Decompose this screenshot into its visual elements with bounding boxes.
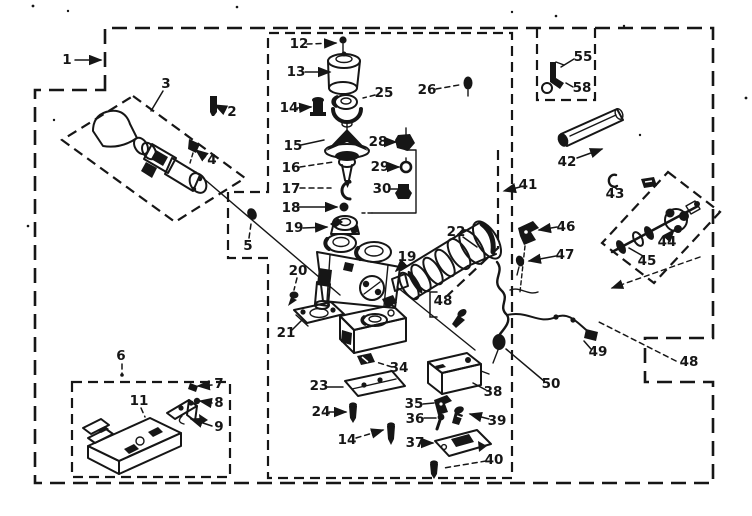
- callout-14: 14: [280, 100, 299, 116]
- callout-9: 9: [214, 419, 223, 435]
- callout-2: 2: [227, 104, 236, 120]
- callout-46: 46: [557, 219, 576, 235]
- leader-40: [444, 461, 486, 468]
- bolt-part-26: [464, 77, 473, 97]
- callout-48: 48: [680, 354, 699, 370]
- leader-46: [539, 227, 557, 230]
- callout-49: 49: [589, 344, 608, 360]
- callout-47: 47: [556, 247, 575, 263]
- leader-3: [151, 91, 163, 111]
- callout-16: 16: [282, 160, 301, 176]
- callout-40: 40: [485, 452, 504, 468]
- leader-47: [529, 256, 556, 261]
- callout-23: 23: [310, 378, 329, 394]
- control-box-part-38: [428, 353, 489, 394]
- callout-7: 7: [214, 376, 223, 392]
- screw-part-20: [288, 292, 299, 307]
- callout-12: 12: [290, 36, 309, 52]
- callout-20: 20: [289, 263, 308, 279]
- callout-37: 37: [406, 435, 425, 451]
- callout-30: 30: [373, 181, 392, 197]
- callout-29: 29: [371, 159, 390, 175]
- callout-18: 18: [282, 200, 301, 216]
- base-duct-assembly-part-11: [83, 373, 208, 474]
- callout-22: 22: [447, 224, 466, 240]
- leader-7: [198, 385, 212, 386]
- callout-45: 45: [638, 253, 657, 269]
- leader-11: [141, 408, 145, 417]
- leader-26: [436, 85, 459, 89]
- leader-16: [300, 162, 333, 167]
- rod-part-42: [556, 108, 625, 149]
- leader-12: [307, 43, 336, 44]
- leader-55: [561, 59, 574, 67]
- callout-34: 34: [390, 360, 409, 376]
- parts-diagram-page: 1234567891112131415161718192021222324252…: [0, 0, 752, 516]
- leader-39: [470, 414, 489, 419]
- callout-42: 42: [558, 154, 577, 170]
- coil-mounting-bracket: [340, 305, 406, 353]
- bracket-part-35: [434, 395, 452, 415]
- callout-58: 58: [573, 80, 592, 96]
- oval-part-5: [245, 207, 258, 222]
- callout-14: 14: [338, 432, 357, 448]
- callout-19: 19: [285, 220, 304, 236]
- callout-4: 4: [207, 152, 216, 168]
- callout-41: 41: [519, 177, 538, 193]
- leader-15: [301, 140, 324, 145]
- leader-25: [363, 95, 375, 98]
- callout-21: 21: [277, 325, 296, 341]
- callout-48: 48: [434, 293, 453, 309]
- callout-26: 26: [418, 82, 437, 98]
- solenoid-stack-parts-12-19: [310, 36, 369, 234]
- leader-14: [356, 430, 383, 438]
- leader-42: [577, 149, 602, 158]
- callout-15: 15: [284, 138, 303, 154]
- callout-44: 44: [658, 234, 677, 250]
- callout-38: 38: [484, 384, 503, 400]
- callout-24: 24: [312, 404, 331, 420]
- callout-1: 1: [62, 52, 71, 68]
- callout-36: 36: [406, 411, 425, 427]
- leader-48: [597, 321, 676, 361]
- callout-39: 39: [488, 413, 507, 429]
- leader-20: [294, 278, 297, 290]
- leader-19: [303, 227, 327, 228]
- exploded-parts-diagram: 1234567891112131415161718192021222324252…: [0, 0, 752, 516]
- callout-43: 43: [606, 186, 625, 202]
- gas-valve-body: [315, 234, 408, 309]
- callout-55: 55: [574, 49, 593, 65]
- callout-28: 28: [369, 134, 388, 150]
- clip-part-34: [357, 353, 375, 365]
- callout-50: 50: [542, 376, 561, 392]
- igniter-plate-part-37: [435, 430, 491, 456]
- bolt-part-39: [452, 405, 465, 425]
- leader-50: [506, 349, 544, 381]
- leader-35: [423, 403, 434, 404]
- callout-13: 13: [287, 64, 306, 80]
- screw-part-24: [349, 402, 357, 423]
- screw-part-48: [452, 307, 468, 328]
- callout-5: 5: [243, 238, 252, 254]
- callout-25: 25: [375, 85, 394, 101]
- callout-35: 35: [405, 396, 424, 412]
- leader-14: [297, 107, 311, 108]
- leader-5: [249, 224, 251, 238]
- callout-3: 3: [161, 76, 170, 92]
- screw-part-14b: [387, 422, 395, 445]
- callout-8: 8: [214, 395, 223, 411]
- screw-part-40: [430, 460, 438, 479]
- leader-8: [200, 401, 212, 403]
- leader-4: [196, 150, 205, 157]
- callout-19: 19: [398, 249, 417, 265]
- screw-part-36: [437, 414, 444, 429]
- callout-6: 6: [116, 348, 125, 364]
- wire-harness-parts-49-50: [493, 262, 599, 363]
- callout-17: 17: [282, 181, 301, 197]
- gasket-part-21: [294, 302, 344, 326]
- callout-11: 11: [130, 393, 149, 409]
